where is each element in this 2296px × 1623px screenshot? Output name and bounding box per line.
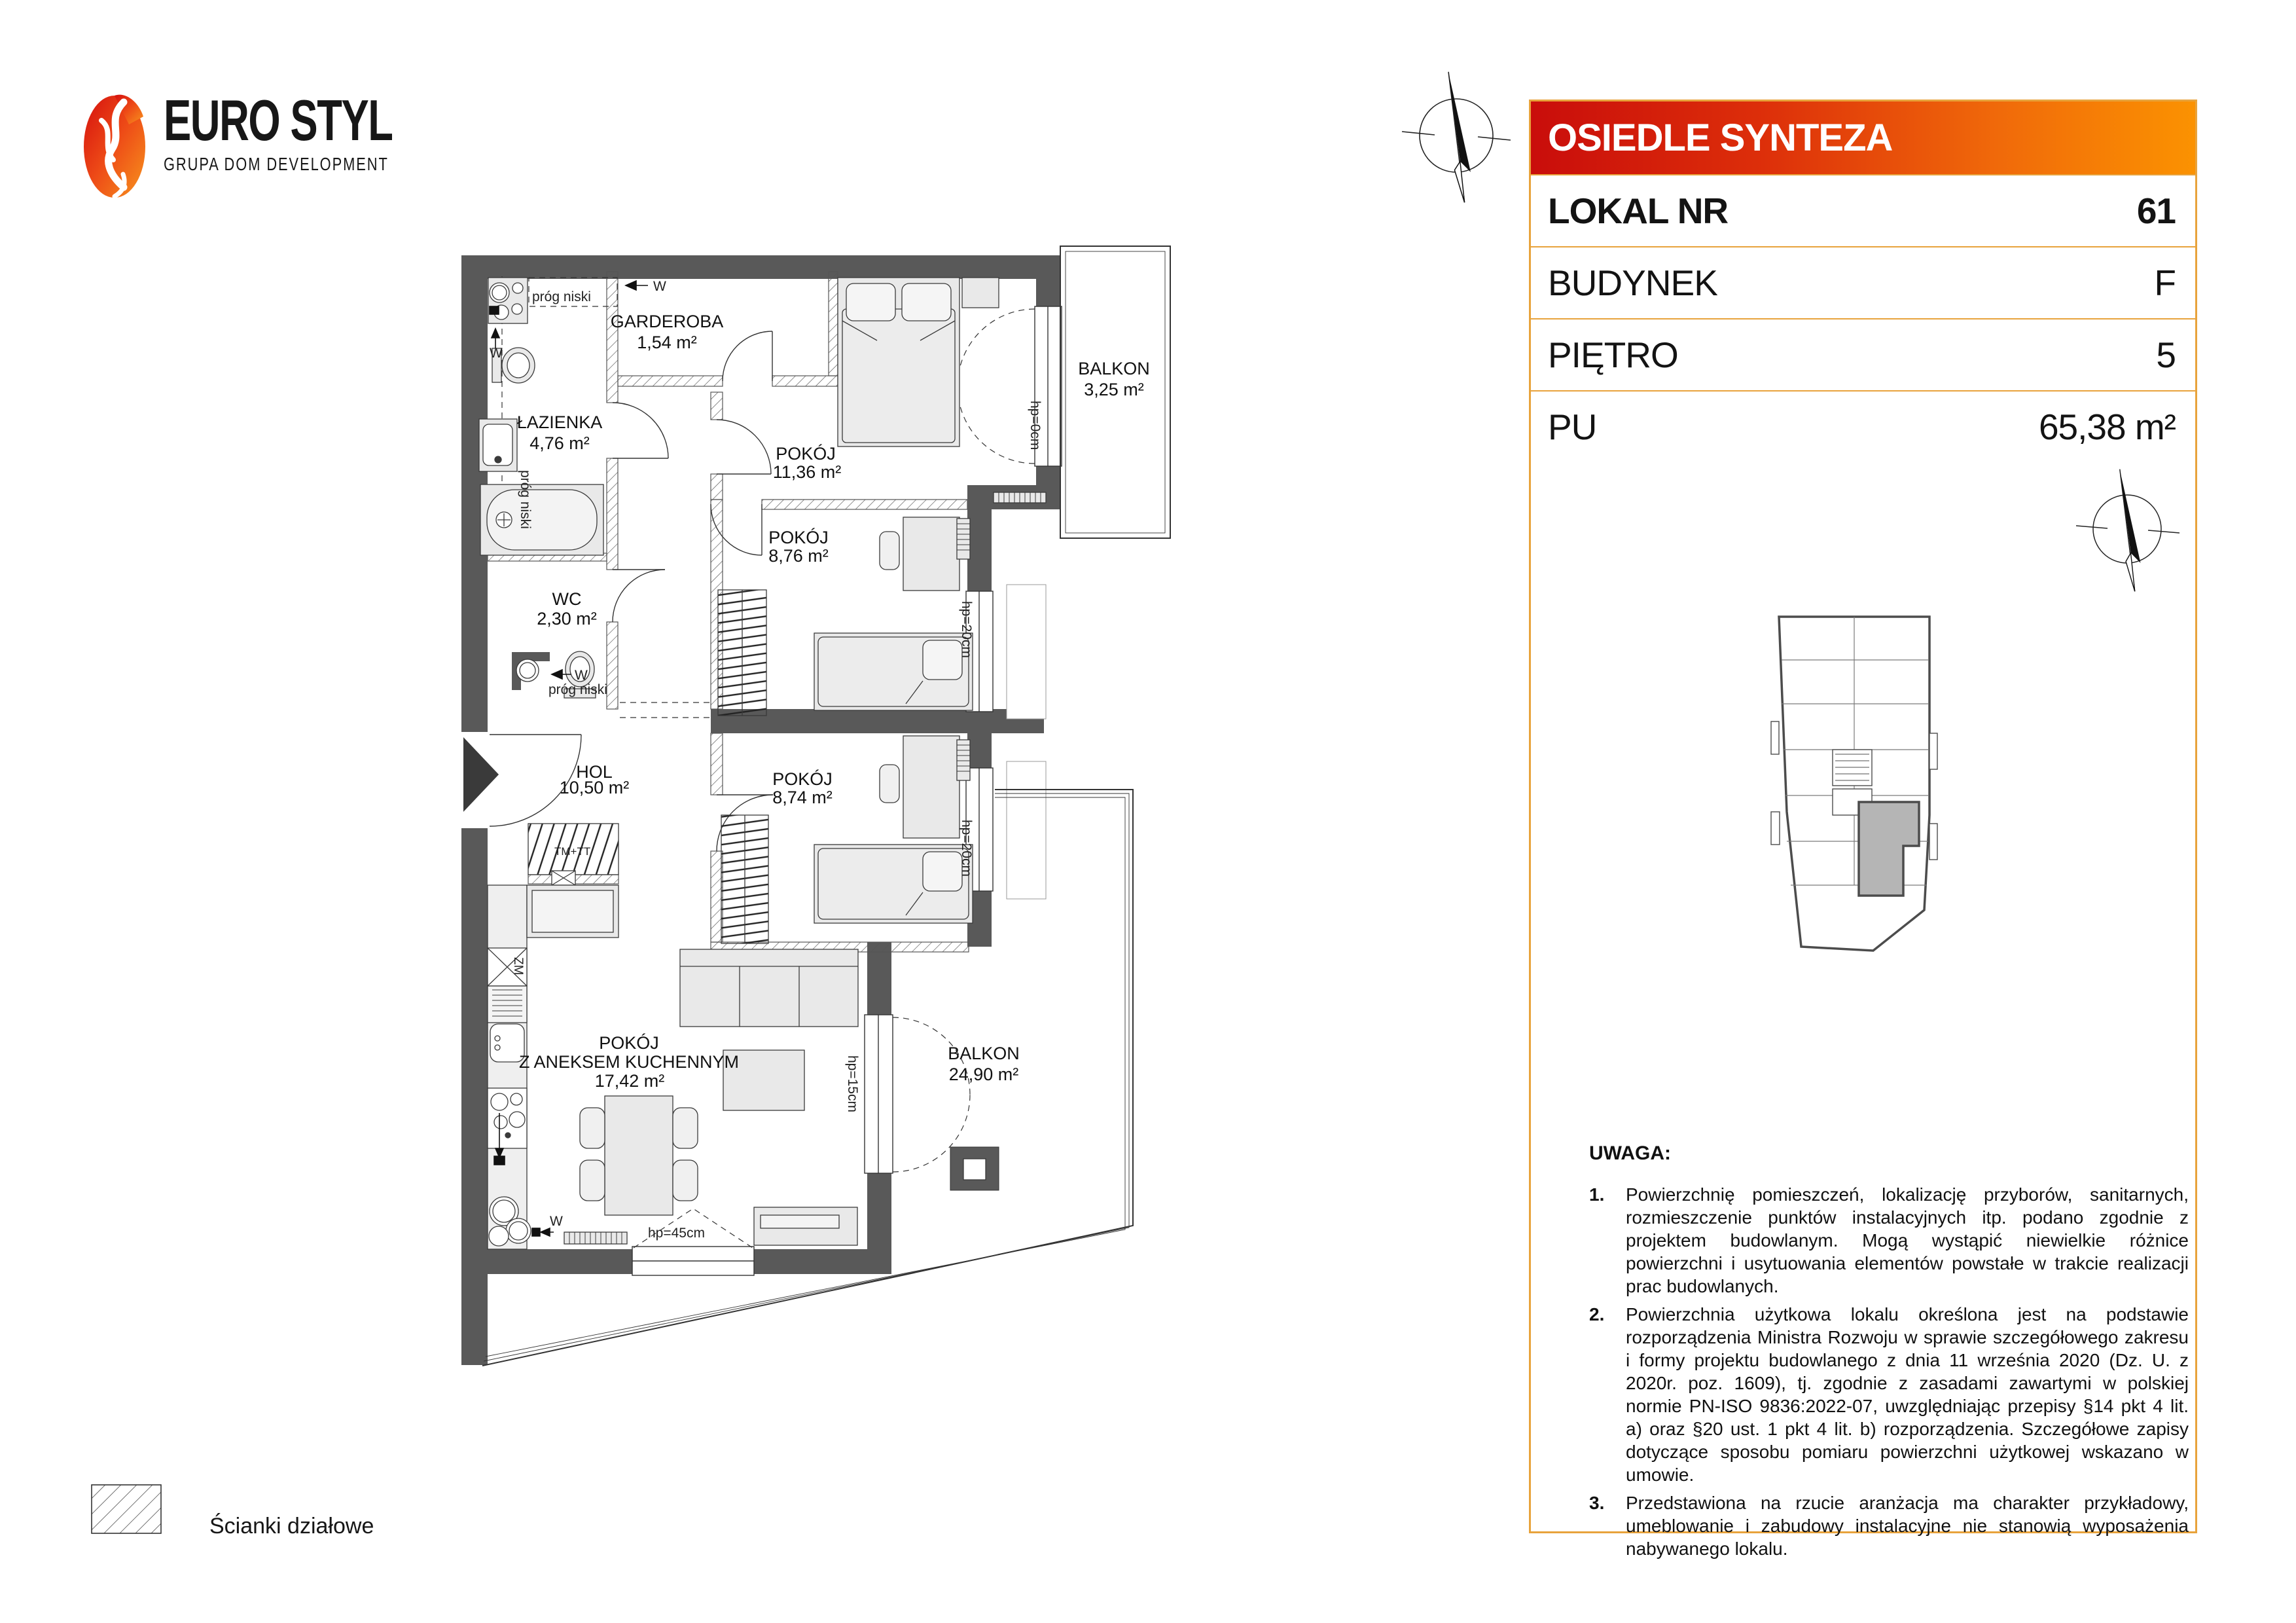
- windows: [632, 306, 1062, 1275]
- corner-cabinet-icon: [489, 1197, 531, 1246]
- row-lokal-label: LOKAL NR: [1548, 190, 1728, 232]
- row-pietro-value: 5: [2156, 334, 2176, 376]
- stove-icon: [488, 1088, 527, 1148]
- row-lokal-nr: LOKAL NR 61: [1531, 174, 2195, 246]
- row-pietro-label: PIĘTRO: [1548, 334, 1678, 376]
- legend-swatch: [92, 1485, 161, 1533]
- label-pokoj-874-area: 8,74 m²: [772, 788, 833, 807]
- radiator-icon: [564, 1232, 627, 1244]
- label-hol: HOL: [576, 762, 613, 782]
- toilet-icon: [492, 348, 535, 383]
- hall-wardrobe-icon: [528, 824, 619, 875]
- anno-zm: ZM: [511, 957, 525, 975]
- row-pu: PU 65,38 m²: [1531, 390, 2195, 462]
- eurostyl-logo: EURO STYL GRUPA DOM DEVELOPMENT: [84, 89, 393, 198]
- row-budynek-label: BUDYNEK: [1548, 262, 1717, 304]
- label-pokoj-11-area: 11,36 m²: [773, 462, 842, 482]
- label-pokoj-876: POKÓJ: [768, 527, 829, 547]
- anno-hp20-a: hp=20cm: [959, 601, 974, 658]
- kitchen-sink-icon: [488, 986, 527, 1062]
- entrance-arrow-icon: [463, 737, 499, 812]
- vent-arrows: [490, 281, 648, 1236]
- wardrobe-icon: [718, 590, 766, 716]
- balcony-column: [950, 1147, 999, 1190]
- label-lazienka: ŁAZIENKA: [517, 412, 603, 432]
- notes-section: UWAGA: 1. Powierzchnię pomieszczeń, loka…: [1589, 1142, 2189, 1560]
- nightstand-icon: [962, 278, 999, 308]
- wardrobe-icon: [721, 815, 768, 943]
- anno-hp0: hp=0cm: [1028, 401, 1043, 450]
- room-labels: GARDEROBA 1,54 m² ŁAZIENKA 4,76 m² POKÓJ…: [517, 312, 1150, 1091]
- row-pu-value: 65,38 m²: [2039, 406, 2176, 448]
- row-budynek: BUDYNEK F: [1531, 246, 2195, 318]
- floorplan-sheet: OSIEDLE SYNTEZA LOKAL NR 61 BUDYNEK F PI…: [0, 0, 2296, 1623]
- label-living: POKÓJ: [599, 1032, 659, 1053]
- anno-prog-top: próg niski: [532, 289, 591, 304]
- north-compass-icon: [1402, 71, 1511, 203]
- label-balkon-duzy: BALKON: [948, 1044, 1020, 1063]
- label-pokoj-876-area: 8,76 m²: [768, 546, 829, 566]
- wc-washer-icon: [516, 659, 539, 682]
- anno-hp45: hp=45cm: [648, 1226, 705, 1241]
- exterior-walls: [461, 255, 1060, 1365]
- label-living-sub: Z ANEKSEM KUCHENNYM: [519, 1052, 739, 1072]
- single-bed-icon: [814, 845, 973, 923]
- label-wc: WC: [552, 589, 582, 609]
- notes-title: UWAGA:: [1589, 1142, 2189, 1165]
- balcony-railings: [482, 246, 1170, 1366]
- label-hol-area: 10,50 m²: [560, 778, 630, 797]
- label-balkon-maly-area: 3,25 m²: [1084, 380, 1144, 399]
- anno-prog-wc: próg niski: [548, 682, 607, 697]
- washing-machine-icon: [488, 278, 528, 323]
- label-garderoba-area: 1,54 m²: [637, 333, 697, 352]
- sofa-icon: [680, 949, 858, 1027]
- dining-table-icon: [580, 1096, 698, 1215]
- coffee-table-icon: [723, 1050, 804, 1110]
- bathtub-icon: [480, 484, 603, 555]
- brand-subtitle: GRUPA DOM DEVELOPMENT: [164, 154, 389, 174]
- anno-w-kitchen: W: [550, 1214, 563, 1229]
- note-item-2: 2. Powierzchnia użytkowa lokalu określon…: [1589, 1303, 2189, 1486]
- dishwasher-box: [488, 948, 527, 986]
- row-pu-label: PU: [1548, 406, 1596, 448]
- radiator-icon: [957, 519, 970, 559]
- flame-logo-icon: [84, 95, 145, 198]
- radiator-icon: [957, 740, 970, 780]
- label-pokoj-874: POKÓJ: [772, 769, 833, 789]
- fridge-icon: [527, 885, 619, 938]
- radiator-icon: [994, 492, 1046, 503]
- anno-w-top: W: [653, 279, 666, 294]
- info-panel: OSIEDLE SYNTEZA LOKAL NR 61 BUDYNEK F PI…: [1529, 100, 2197, 1533]
- anno-w-bath: W: [490, 346, 503, 361]
- anno-w-wc: W: [575, 668, 588, 683]
- partition-walls: [488, 272, 969, 952]
- kitchen-counter: [488, 885, 527, 1249]
- single-bed-icon: [814, 633, 973, 710]
- label-balkon-duzy-area: 24,90 m²: [949, 1065, 1019, 1084]
- double-bed-icon: [838, 278, 960, 447]
- plan-annotations: W próg niski próg niski W W próg niski h…: [490, 279, 1043, 1241]
- brand-name: EURO STYL: [164, 89, 393, 153]
- label-balkon-maly: BALKON: [1078, 359, 1150, 378]
- desk-icon: [880, 517, 960, 591]
- vent-box: [552, 871, 575, 885]
- anno-prog-bath: próg niski: [518, 470, 533, 529]
- anno-tm: TM+TT: [554, 845, 590, 858]
- label-pokoj-11: POKÓJ: [776, 443, 836, 464]
- label-living-area: 17,42 m²: [595, 1071, 665, 1091]
- row-pietro: PIĘTRO 5: [1531, 318, 2195, 390]
- row-lokal-value: 61: [2137, 190, 2176, 232]
- row-budynek-value: F: [2154, 262, 2176, 304]
- label-wc-area: 2,30 m²: [537, 609, 597, 629]
- label-garderoba: GARDEROBA: [611, 312, 724, 331]
- doors: [463, 276, 1035, 1248]
- tv-cabinet-icon: [754, 1207, 857, 1245]
- note-item-3: 3. Przedstawiona na rzucie aranżacja ma …: [1589, 1491, 2189, 1560]
- wc-toilet-icon: [564, 651, 596, 698]
- note-item-1: 1. Powierzchnię pomieszczeń, lokalizację…: [1589, 1183, 2189, 1298]
- legend-label: Ścianki działowe: [209, 1513, 374, 1539]
- label-lazienka-area: 4,76 m²: [529, 433, 590, 453]
- sink-icon: [479, 419, 517, 471]
- anno-hp15: hp=15cm: [845, 1055, 860, 1112]
- legend: Ścianki działowe: [92, 1485, 374, 1539]
- estate-title: OSIEDLE SYNTEZA: [1531, 101, 2195, 174]
- furniture: [479, 278, 1046, 1249]
- desk-icon: [880, 736, 960, 838]
- anno-hp20-b: hp=20cm: [959, 820, 974, 877]
